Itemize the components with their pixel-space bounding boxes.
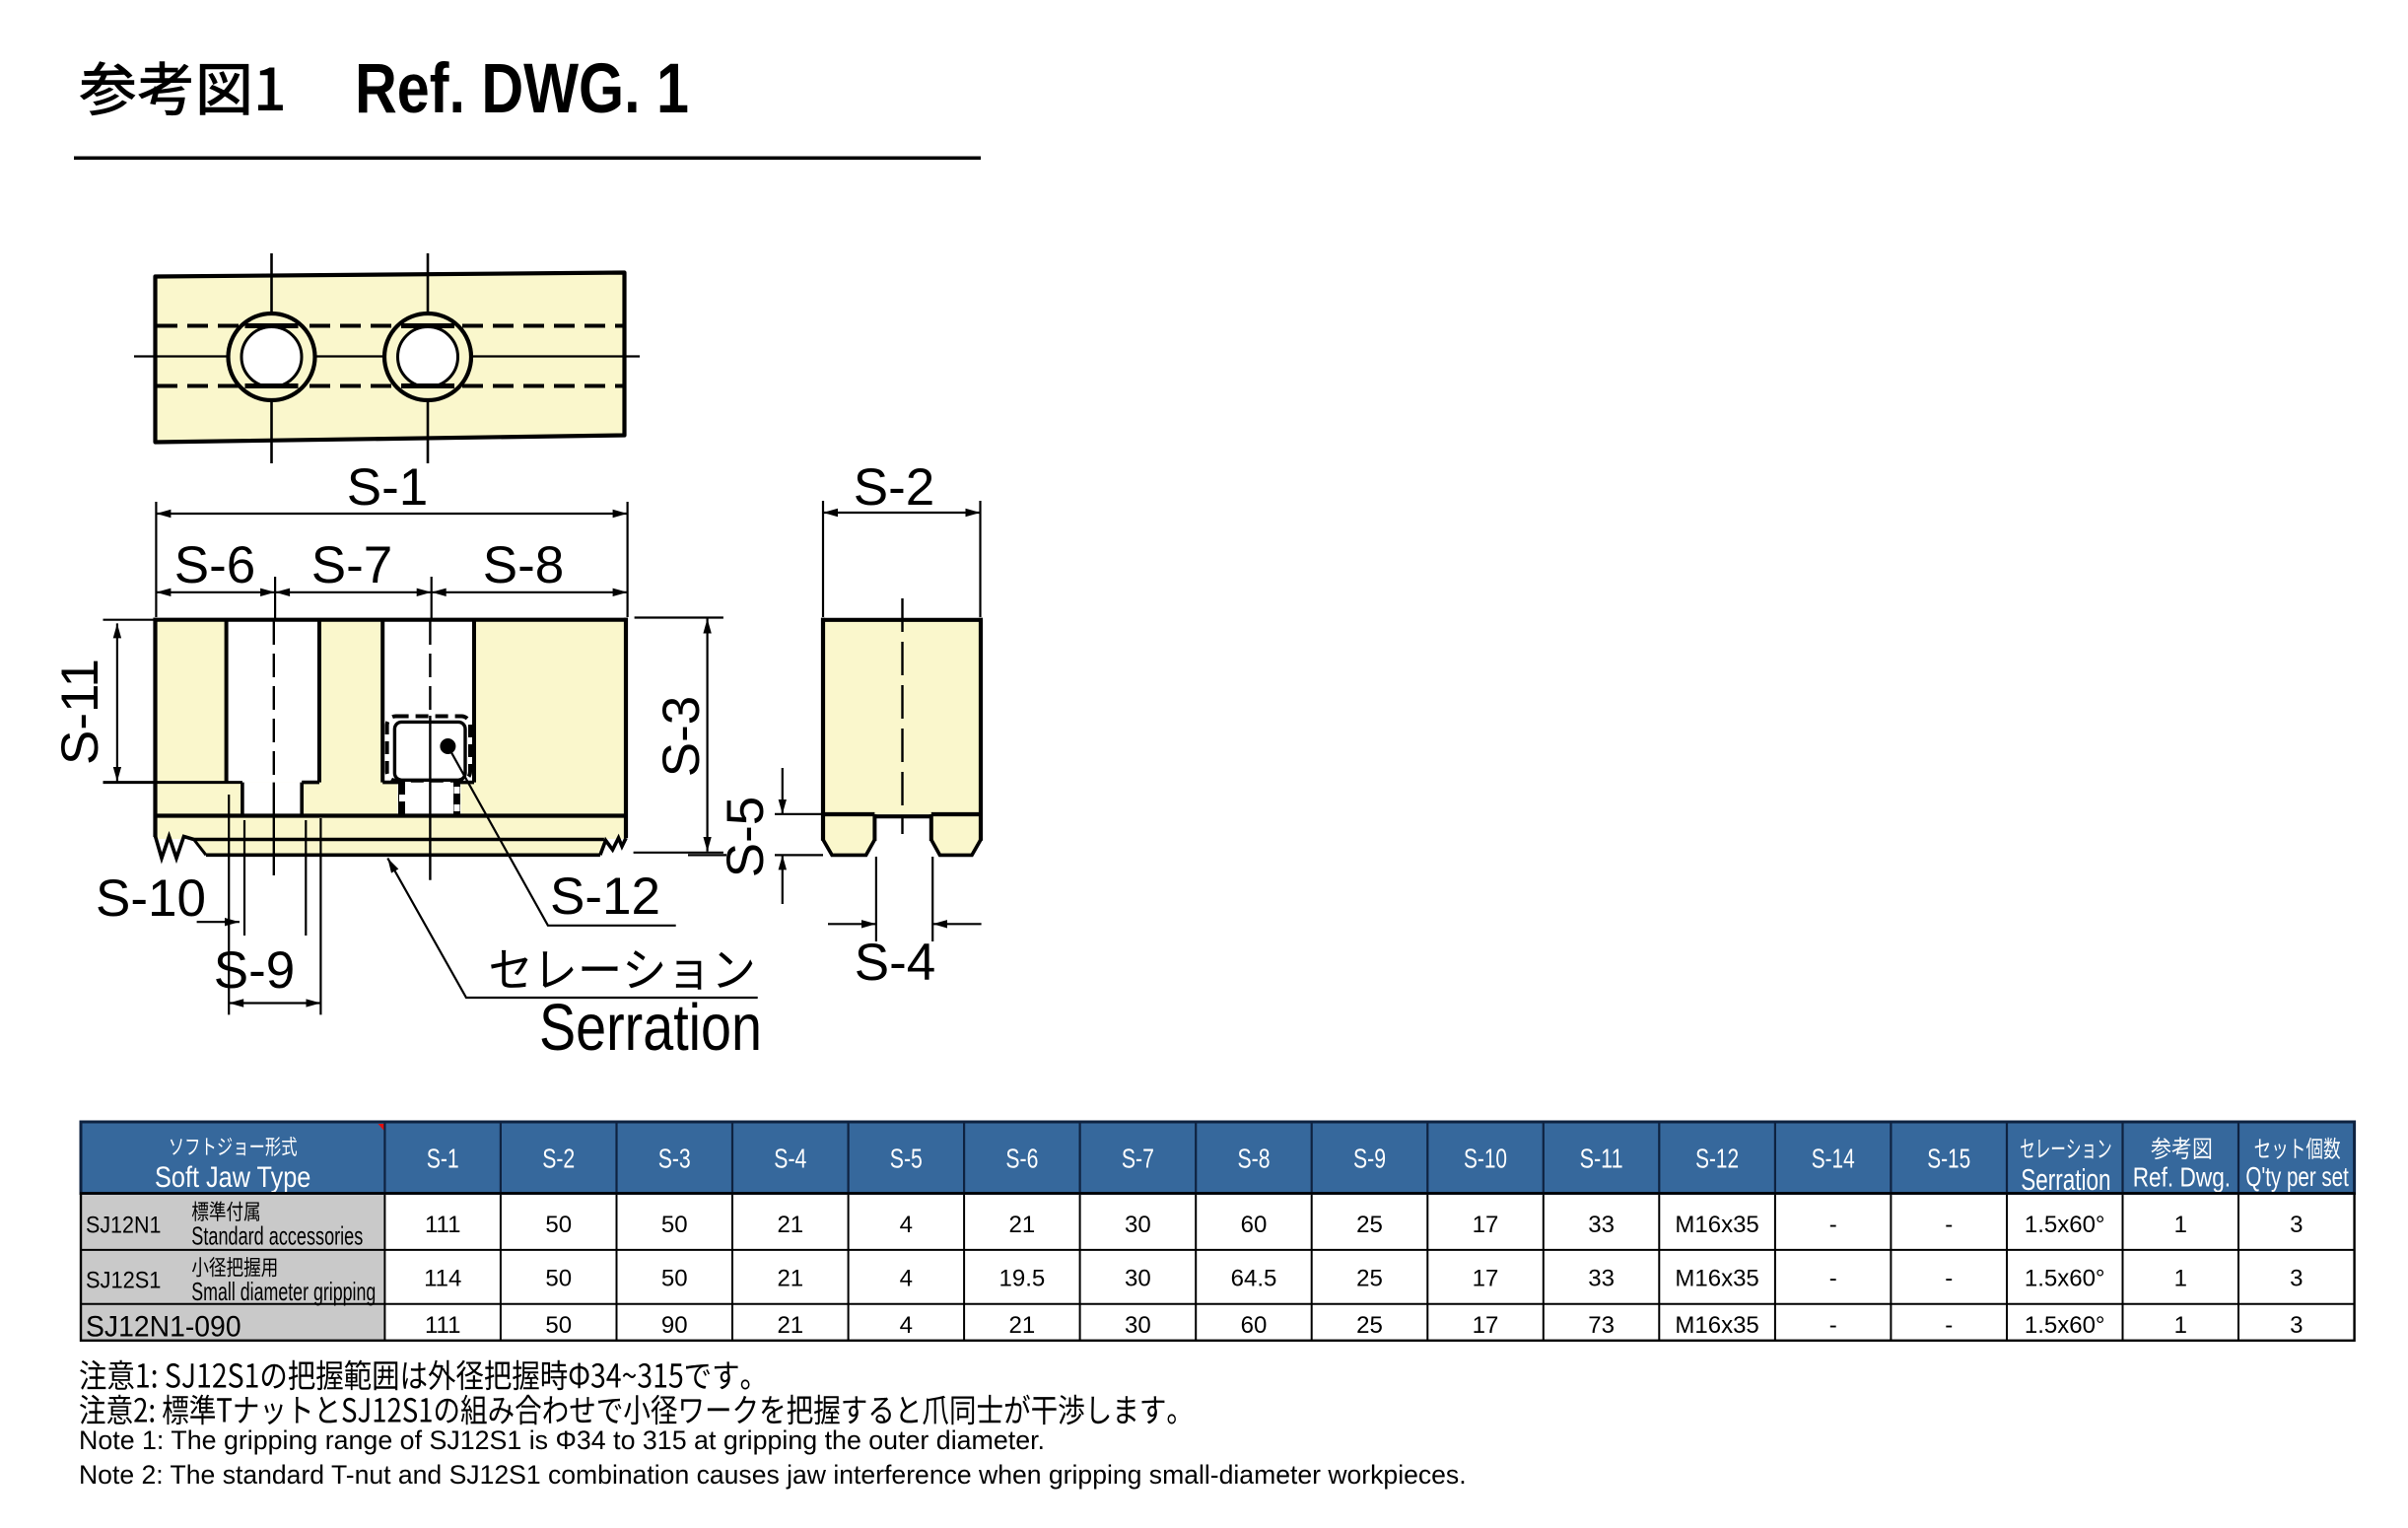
svg-text:21: 21 [777,1312,803,1339]
svg-text:-: - [1829,1265,1837,1291]
svg-text:60: 60 [1241,1312,1268,1339]
svg-text:Standard accessories: Standard accessories [191,1221,363,1251]
svg-text:4: 4 [900,1312,913,1339]
svg-text:-: - [1829,1212,1837,1238]
svg-text:1: 1 [2174,1265,2187,1291]
svg-text:S-3: S-3 [653,696,711,777]
svg-text:Ref. DWG. 1: Ref. DWG. 1 [355,50,689,128]
svg-text:111: 111 [425,1312,460,1339]
svg-text:M16x35: M16x35 [1675,1312,1758,1339]
svg-text:111: 111 [425,1212,460,1238]
svg-text:17: 17 [1473,1312,1499,1339]
svg-text:SJ12N1-090: SJ12N1-090 [86,1311,241,1344]
svg-text:S-1: S-1 [427,1144,459,1174]
svg-text:30: 30 [1125,1265,1151,1291]
svg-text:M16x35: M16x35 [1675,1265,1758,1291]
svg-text:-: - [1945,1212,1953,1238]
svg-text:S-3: S-3 [658,1144,691,1174]
svg-text:19.5: 19.5 [999,1265,1046,1291]
svg-text:S-4: S-4 [855,934,935,992]
svg-text:50: 50 [661,1265,688,1291]
svg-text:25: 25 [1356,1212,1383,1238]
svg-text:-: - [1829,1312,1837,1339]
svg-text:1.5x60°: 1.5x60° [2025,1265,2105,1291]
svg-text:50: 50 [545,1312,572,1339]
svg-text:90: 90 [661,1312,688,1339]
svg-text:Small diameter gripping: Small diameter gripping [191,1277,376,1306]
svg-text:SJ12S1: SJ12S1 [86,1267,161,1293]
svg-text:33: 33 [1588,1212,1615,1238]
svg-text:S-5: S-5 [890,1144,923,1174]
svg-text:S-7: S-7 [311,536,392,594]
svg-text:60: 60 [1241,1212,1268,1238]
svg-text:S-11: S-11 [1580,1144,1623,1174]
svg-text:Soft Jaw Type: Soft Jaw Type [155,1161,310,1194]
svg-text:30: 30 [1125,1312,1151,1339]
svg-text:50: 50 [545,1212,572,1238]
svg-text:S-6: S-6 [1005,1144,1038,1174]
svg-text:1: 1 [2174,1212,2187,1238]
svg-text:21: 21 [777,1212,803,1238]
svg-text:S-8: S-8 [1238,1144,1271,1174]
svg-text:33: 33 [1588,1265,1615,1291]
svg-text:17: 17 [1473,1265,1499,1291]
svg-text:S-12: S-12 [1695,1144,1739,1174]
svg-text:1: 1 [2174,1312,2187,1339]
svg-text:Note 2: The standard T-nut and: Note 2: The standard T-nut and SJ12S1 co… [79,1460,1467,1490]
svg-text:Note 1: The gripping range of: Note 1: The gripping range of SJ12S1 is … [79,1425,1045,1455]
svg-text:SJ12N1: SJ12N1 [86,1213,161,1239]
svg-text:73: 73 [1588,1312,1615,1339]
svg-text:-: - [1945,1265,1953,1291]
svg-text:S-10: S-10 [1464,1144,1507,1174]
svg-text:S-14: S-14 [1812,1144,1855,1174]
svg-text:Serration: Serration [539,991,762,1065]
svg-text:M16x35: M16x35 [1675,1212,1758,1238]
svg-text:50: 50 [545,1265,572,1291]
svg-text:Serration: Serration [2021,1162,2110,1197]
svg-text:4: 4 [900,1212,913,1238]
svg-text:S-11: S-11 [51,659,109,765]
svg-text:S-2: S-2 [542,1144,575,1174]
svg-text:30: 30 [1125,1212,1151,1238]
svg-text:S-7: S-7 [1122,1144,1154,1174]
svg-text:17: 17 [1473,1212,1499,1238]
svg-text:S-4: S-4 [774,1144,806,1174]
svg-text:S-5: S-5 [717,797,775,877]
svg-text:1.5x60°: 1.5x60° [2025,1312,2105,1339]
svg-text:-: - [1945,1312,1953,1339]
svg-text:S-8: S-8 [483,536,564,594]
svg-text:Ref. Dwg.: Ref. Dwg. [2133,1162,2231,1193]
svg-text:21: 21 [1009,1212,1036,1238]
svg-text:3: 3 [2290,1312,2303,1339]
svg-text:21: 21 [1009,1312,1036,1339]
svg-text:114: 114 [424,1265,461,1291]
svg-text:S-9: S-9 [1353,1144,1386,1174]
svg-text:S-1: S-1 [347,458,428,517]
svg-text:S-12: S-12 [550,868,660,926]
svg-text:21: 21 [777,1265,803,1291]
svg-text:Q'ty per set: Q'ty per set [2245,1161,2349,1192]
svg-text:64.5: 64.5 [1231,1265,1277,1291]
svg-text:25: 25 [1356,1312,1383,1339]
svg-text:3: 3 [2290,1212,2303,1238]
svg-text:S-10: S-10 [96,869,206,928]
svg-text:S-9: S-9 [214,941,295,1000]
svg-text:S-15: S-15 [1927,1144,1970,1174]
svg-text:50: 50 [661,1212,688,1238]
svg-text:S-6: S-6 [174,536,255,594]
svg-text:4: 4 [900,1265,913,1291]
svg-text:25: 25 [1356,1265,1383,1291]
svg-text:1.5x60°: 1.5x60° [2025,1212,2105,1238]
svg-text:S-2: S-2 [854,458,934,517]
svg-text:3: 3 [2290,1265,2303,1291]
